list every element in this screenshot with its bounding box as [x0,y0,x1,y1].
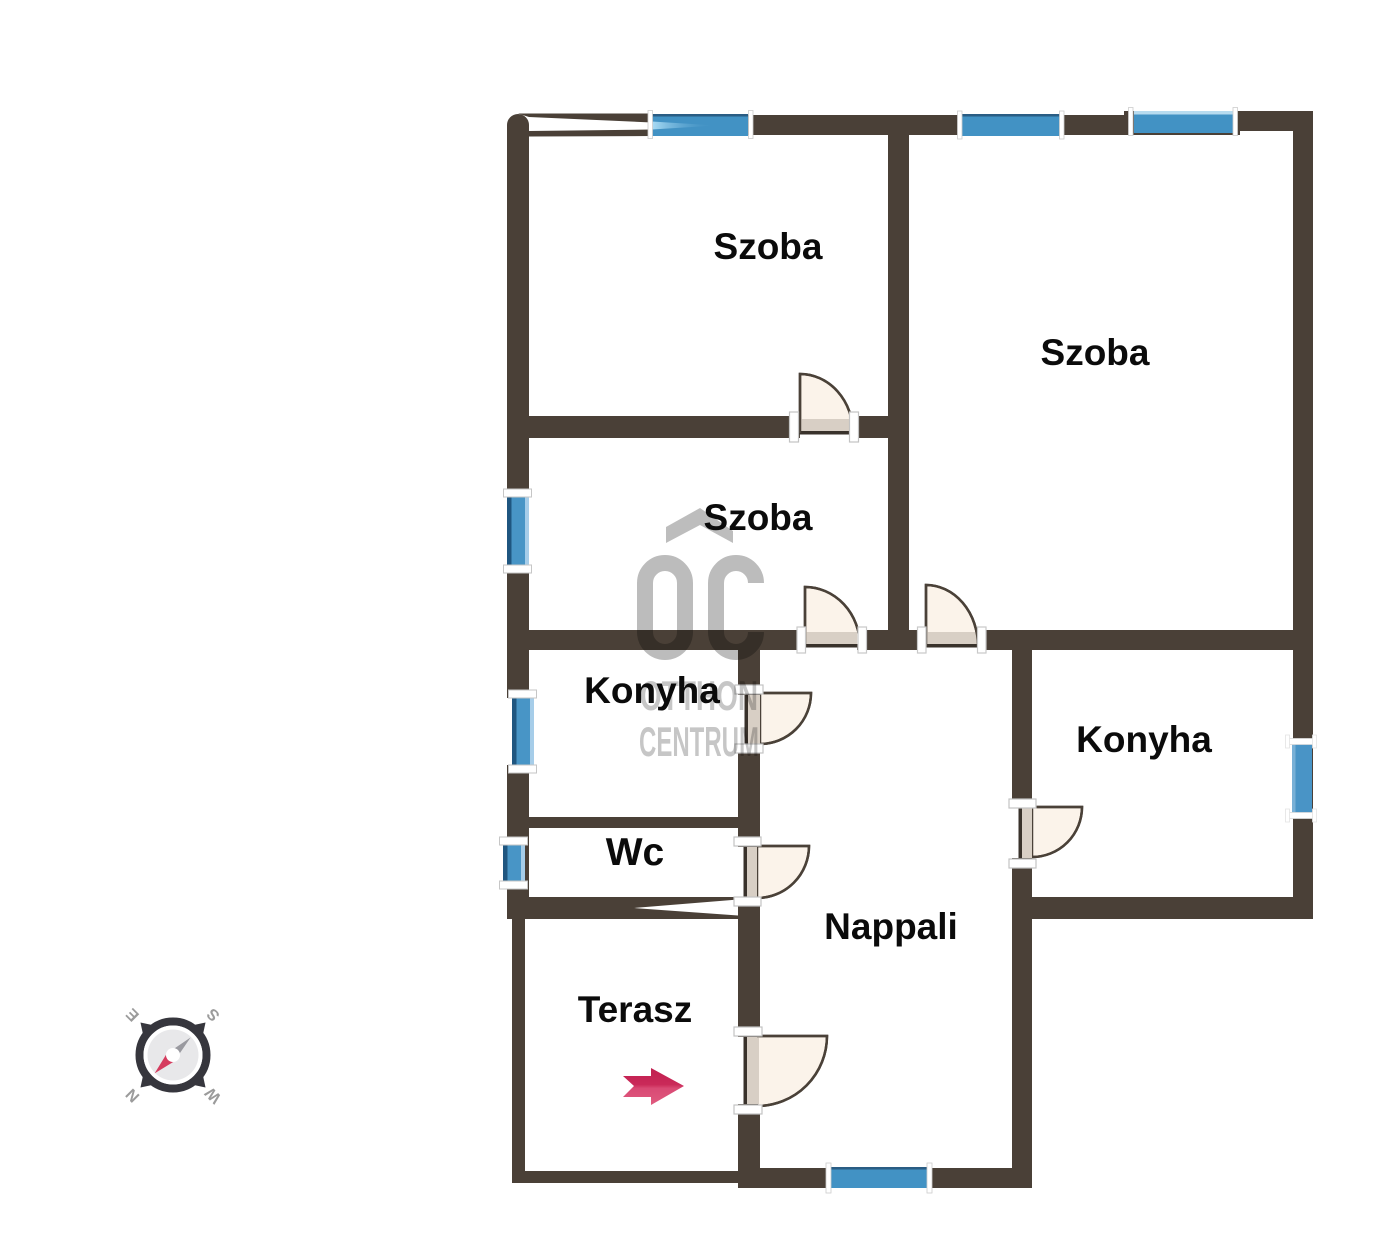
svg-text:Konyha: Konyha [1076,719,1212,760]
svg-text:Szoba: Szoba [714,226,823,267]
svg-text:Wc: Wc [606,831,665,874]
svg-text:Terasz: Terasz [578,989,693,1030]
svg-text:Szoba: Szoba [704,497,813,538]
svg-text:Nappali: Nappali [824,906,958,947]
svg-text:CENTRUM: CENTRUM [639,718,759,765]
svg-text:Konyha: Konyha [584,670,720,711]
svg-text:Szoba: Szoba [1041,332,1150,373]
